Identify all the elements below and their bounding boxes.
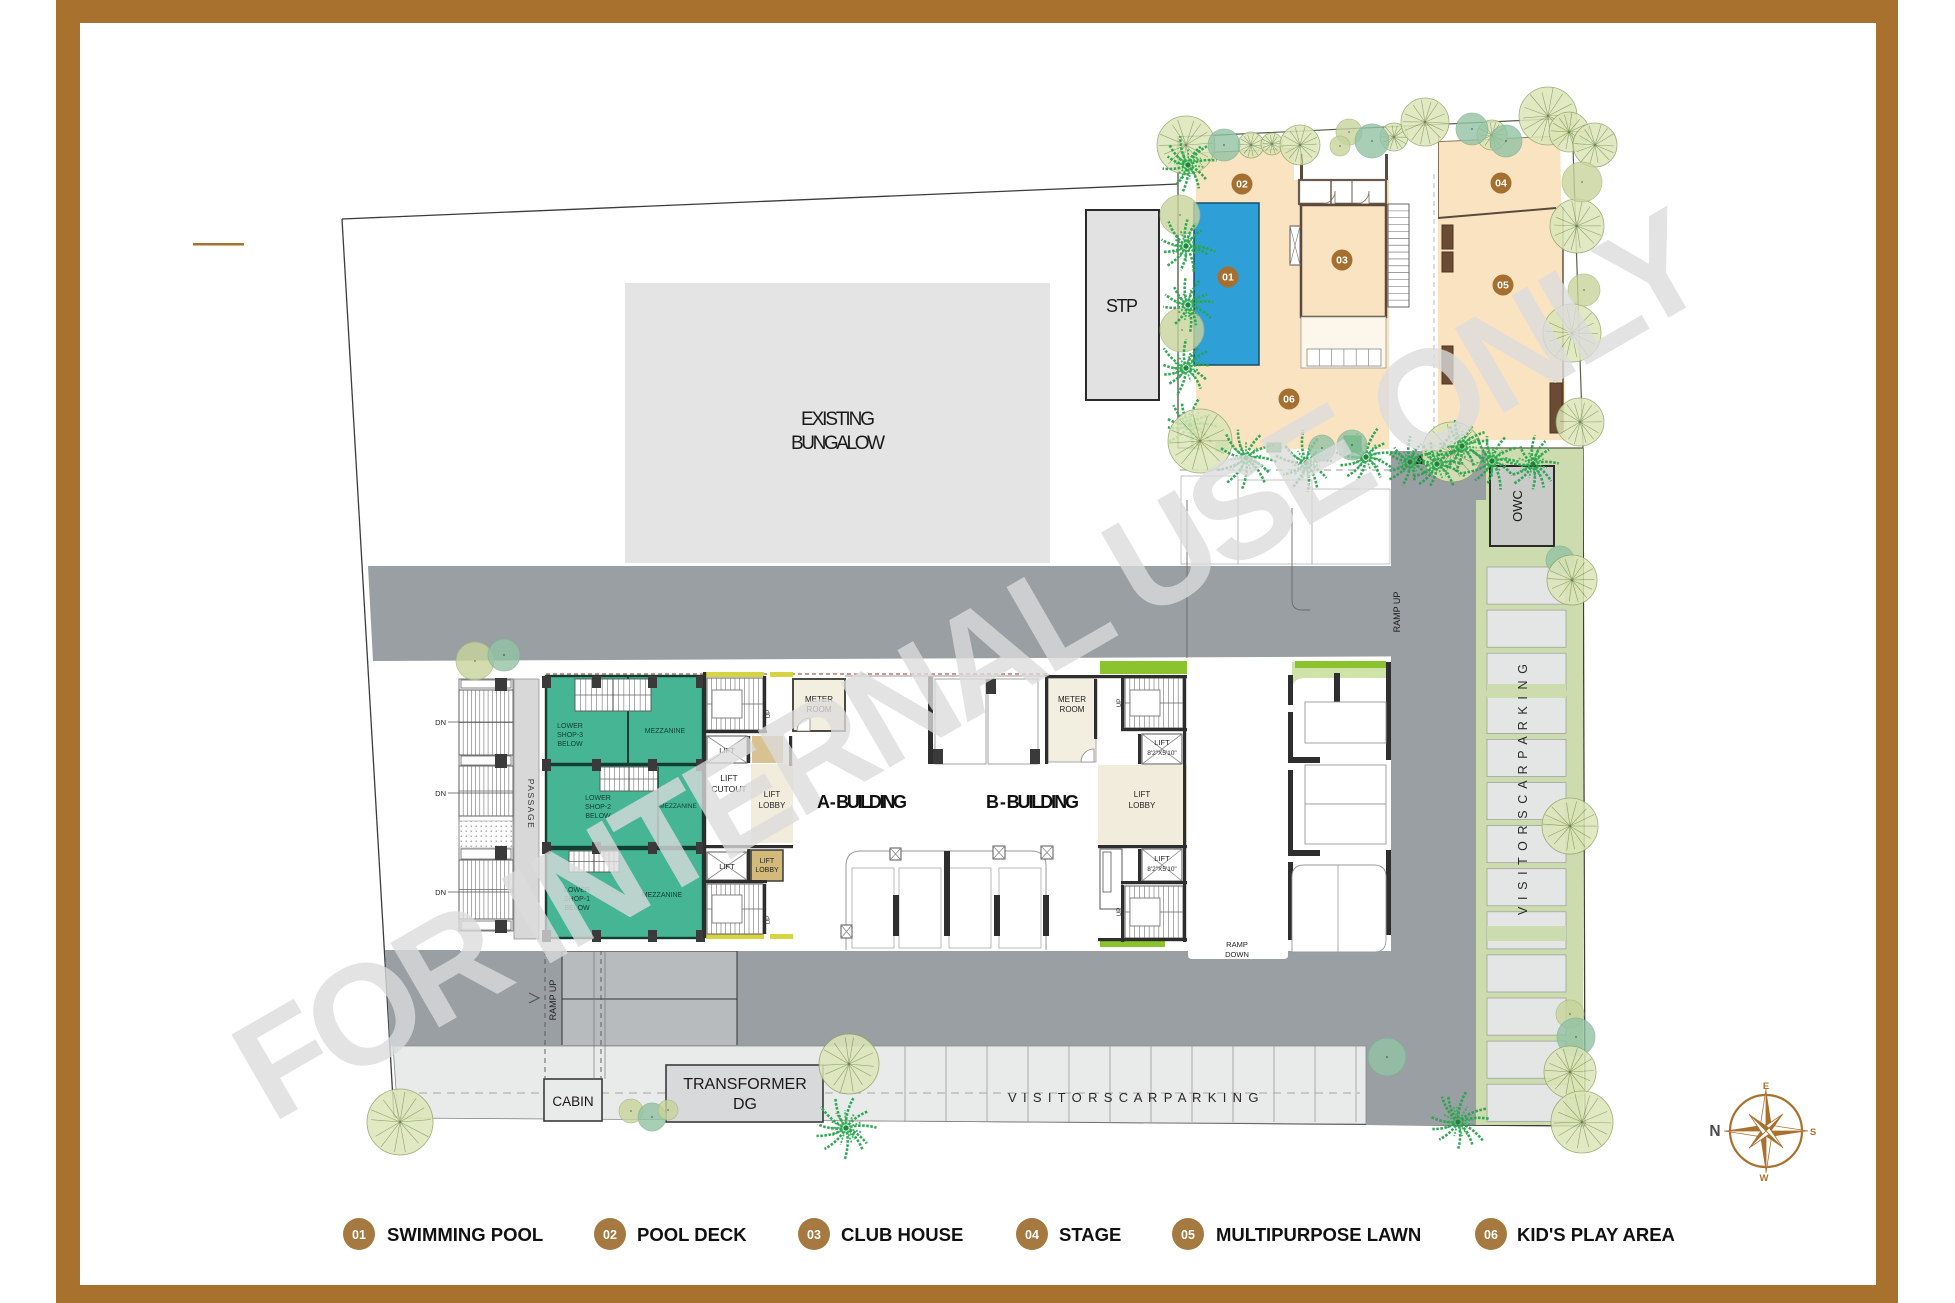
svg-text:8'2"X5'10": 8'2"X5'10" (1147, 866, 1177, 873)
svg-text:03: 03 (807, 1228, 821, 1242)
svg-text:CABIN: CABIN (552, 1094, 593, 1109)
svg-text:LOBBY: LOBBY (1129, 801, 1156, 810)
svg-text:V I S I T O R S C A R P A: V I S I T O R S C A R P A R K I N G (1008, 1090, 1260, 1105)
svg-text:BUNGALOW: BUNGALOW (791, 433, 885, 454)
svg-text:B - BUILDING: B - BUILDING (986, 792, 1079, 812)
svg-text:A - BUILDING: A - BUILDING (817, 792, 907, 812)
svg-text:01: 01 (1222, 272, 1234, 284)
svg-text:MULTIPURPOSE LAWN: MULTIPURPOSE LAWN (1216, 1224, 1421, 1245)
svg-text:DOWN: DOWN (1225, 950, 1249, 959)
svg-text:06: 06 (1484, 1228, 1498, 1242)
svg-text:02: 02 (1236, 179, 1248, 191)
svg-text:TRANSFORMER: TRANSFORMER (683, 1076, 807, 1093)
svg-text:MEZZANINE: MEZZANINE (645, 728, 686, 735)
svg-text:PASSAGE: PASSAGE (526, 779, 536, 830)
svg-text:POOL DECK: POOL DECK (637, 1224, 747, 1245)
svg-text:STP: STP (1106, 296, 1138, 316)
svg-text:S: S (1810, 1127, 1816, 1138)
svg-text:RAMP: RAMP (1226, 940, 1248, 949)
svg-text:SWIMMING POOL: SWIMMING POOL (387, 1224, 543, 1245)
svg-text:RAMP UP: RAMP UP (1392, 592, 1402, 633)
svg-text:V I S I T O R S C A R P A: V I S I T O R S C A R P A R K I N G (1516, 663, 1530, 915)
svg-text:E: E (1763, 1081, 1769, 1092)
svg-text:01: 01 (352, 1228, 366, 1242)
svg-text:DN: DN (435, 718, 446, 727)
svg-text:OWC: OWC (1510, 490, 1525, 522)
svg-text:8'2"X5'10": 8'2"X5'10" (1147, 750, 1177, 757)
svg-text:03: 03 (1336, 255, 1348, 267)
svg-text:ROOM: ROOM (1060, 705, 1085, 714)
svg-text:STAGE: STAGE (1059, 1224, 1121, 1245)
svg-text:LIFT: LIFT (1154, 854, 1170, 863)
svg-text:SHOP-3: SHOP-3 (557, 732, 583, 739)
svg-text:05: 05 (1497, 280, 1509, 292)
svg-text:CLUB HOUSE: CLUB HOUSE (841, 1224, 963, 1245)
svg-text:BELOW: BELOW (557, 741, 583, 748)
svg-text:DN: DN (435, 789, 446, 798)
svg-text:06: 06 (1283, 394, 1295, 406)
svg-text:KID'S PLAY AREA: KID'S PLAY AREA (1517, 1224, 1675, 1245)
svg-text:LIFT: LIFT (1134, 790, 1151, 799)
svg-text:EXISTING: EXISTING (801, 409, 875, 430)
svg-text:LOWER: LOWER (557, 723, 583, 730)
svg-text:04: 04 (1495, 178, 1507, 190)
svg-text:DG: DG (733, 1096, 757, 1113)
svg-text:02: 02 (603, 1228, 617, 1242)
svg-text:N: N (1709, 1123, 1720, 1140)
svg-text:05: 05 (1181, 1228, 1195, 1242)
svg-text:LIFT: LIFT (1154, 738, 1170, 747)
svg-text:W: W (1760, 1173, 1769, 1184)
svg-text:04: 04 (1025, 1228, 1039, 1242)
